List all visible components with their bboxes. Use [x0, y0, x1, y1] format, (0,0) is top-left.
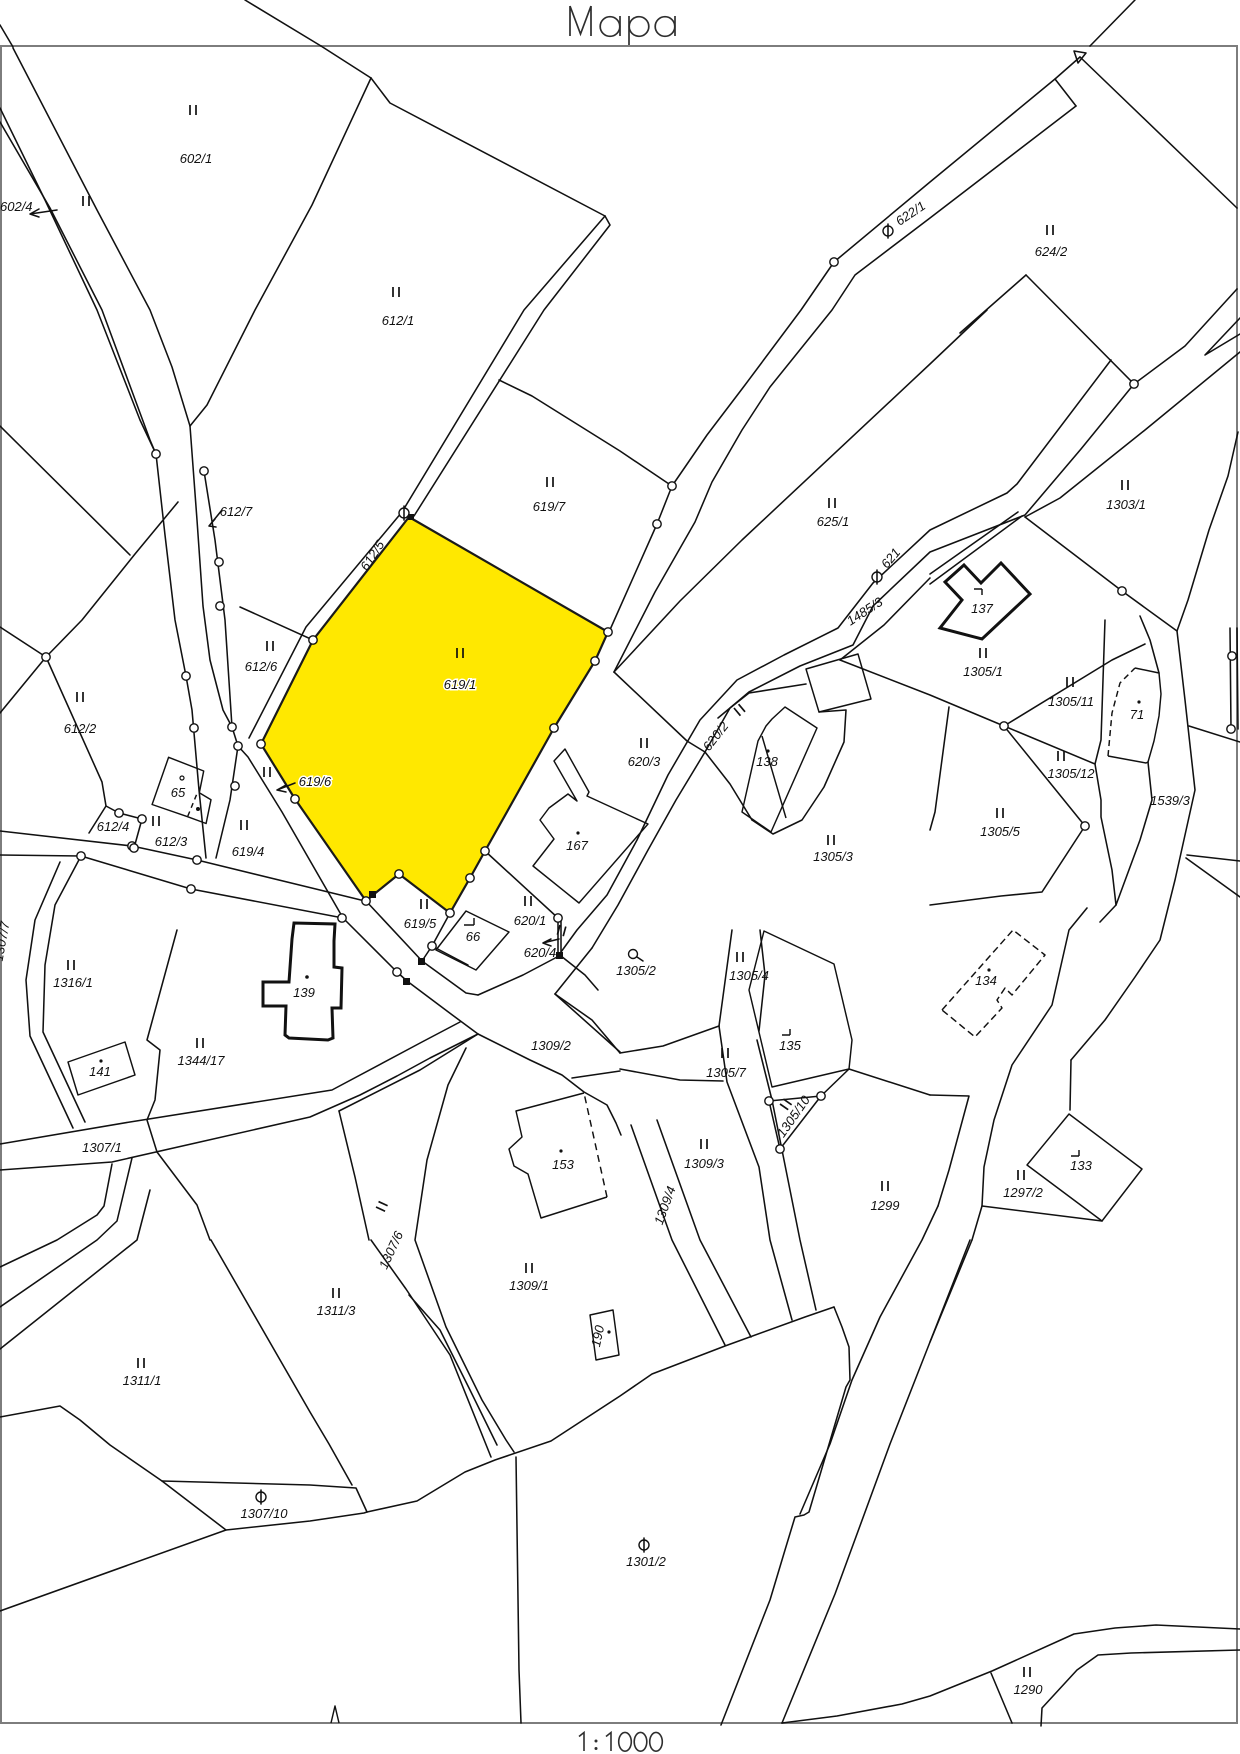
svg-text:139: 139: [293, 985, 315, 1000]
svg-text:1305/12: 1305/12: [1048, 766, 1096, 781]
svg-text:1305/3: 1305/3: [813, 849, 854, 864]
svg-text:1539/3: 1539/3: [1150, 793, 1191, 808]
svg-text:1307/10: 1307/10: [241, 1506, 289, 1521]
svg-text:1299: 1299: [871, 1198, 900, 1213]
svg-text:624/2: 624/2: [1035, 244, 1068, 259]
svg-text:1316/1: 1316/1: [53, 975, 93, 990]
svg-text:1301/2: 1301/2: [626, 1554, 667, 1569]
svg-text:1311/3: 1311/3: [317, 1303, 357, 1318]
svg-text:612/2: 612/2: [64, 721, 97, 736]
svg-text:1303/1: 1303/1: [1106, 497, 1146, 512]
svg-text:612/6: 612/6: [245, 659, 278, 674]
svg-text:137: 137: [971, 601, 993, 616]
svg-text:620/1: 620/1: [514, 913, 547, 928]
svg-text:1309/3: 1309/3: [684, 1156, 725, 1171]
svg-text:1305/1: 1305/1: [963, 664, 1003, 679]
svg-text:141: 141: [89, 1064, 111, 1079]
svg-text:66: 66: [466, 929, 481, 944]
svg-text:619/5: 619/5: [404, 916, 437, 931]
svg-text:620/4: 620/4: [524, 945, 557, 960]
svg-text:1311/1: 1311/1: [123, 1373, 162, 1388]
svg-text:612/4: 612/4: [97, 819, 130, 834]
svg-text:1305/2: 1305/2: [616, 963, 657, 978]
svg-text:1309/1: 1309/1: [509, 1278, 549, 1293]
svg-text:625/1: 625/1: [817, 514, 850, 529]
svg-text:1305/11: 1305/11: [1048, 694, 1094, 709]
svg-text:612/3: 612/3: [155, 834, 188, 849]
svg-text:138: 138: [756, 754, 778, 769]
svg-text:612/7: 612/7: [220, 504, 253, 519]
svg-text:1305/7: 1305/7: [706, 1065, 747, 1080]
svg-text:134: 134: [975, 973, 997, 988]
svg-text:167: 167: [566, 838, 588, 853]
svg-text:1305/5: 1305/5: [980, 824, 1021, 839]
svg-text:620/3: 620/3: [628, 754, 661, 769]
svg-text:135: 135: [779, 1038, 801, 1053]
svg-text:153: 153: [552, 1157, 574, 1172]
svg-text:619/4: 619/4: [232, 844, 265, 859]
svg-text:1309/2: 1309/2: [531, 1038, 572, 1053]
svg-text:133: 133: [1070, 1158, 1092, 1173]
svg-text:71: 71: [1130, 707, 1144, 722]
svg-text:1297/2: 1297/2: [1003, 1185, 1044, 1200]
svg-text:602/4: 602/4: [0, 199, 33, 214]
svg-text:619/1: 619/1: [444, 677, 477, 692]
svg-text:65: 65: [171, 785, 186, 800]
svg-text:619/6: 619/6: [299, 774, 332, 789]
svg-text:1307/1: 1307/1: [82, 1140, 122, 1155]
svg-text:1290: 1290: [1014, 1682, 1044, 1697]
svg-text:612/1: 612/1: [382, 313, 415, 328]
svg-text:1305/4: 1305/4: [729, 968, 769, 983]
svg-text:1344/17: 1344/17: [178, 1053, 226, 1068]
svg-text:602/1: 602/1: [180, 151, 213, 166]
svg-text:619/7: 619/7: [533, 499, 566, 514]
